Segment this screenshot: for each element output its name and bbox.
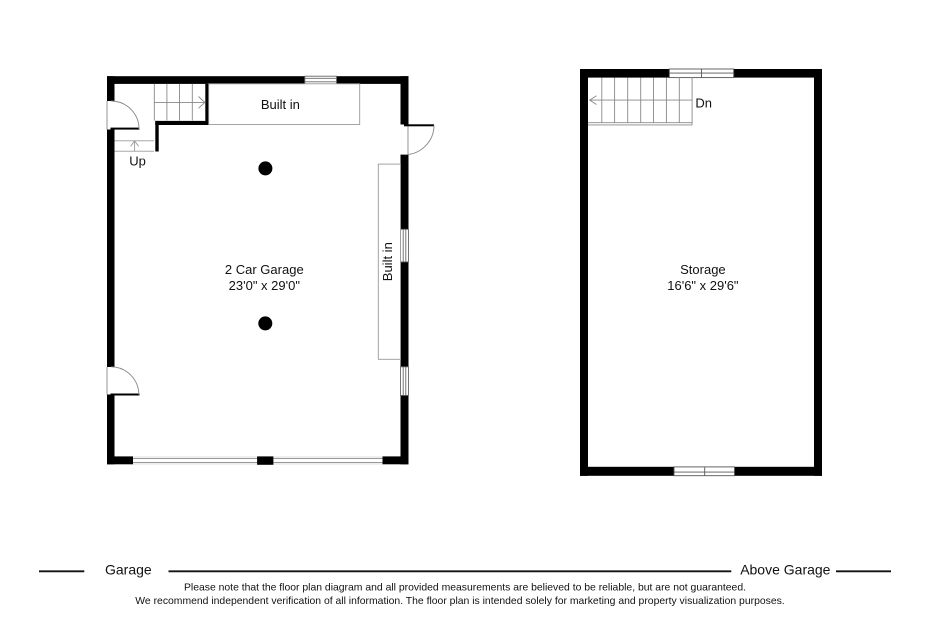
svg-text:Dn: Dn: [695, 95, 712, 110]
svg-text:2 Car Garage: 2 Car Garage: [225, 262, 304, 277]
svg-text:Built in: Built in: [261, 97, 300, 112]
svg-text:16'6" x 29'6": 16'6" x 29'6": [667, 278, 739, 293]
svg-text:Please note that the floor pla: Please note that the floor plan diagram …: [184, 582, 746, 593]
svg-text:23'0" x 29'0": 23'0" x 29'0": [229, 278, 301, 293]
svg-text:We recommend independent verif: We recommend independent verification of…: [135, 596, 784, 607]
svg-text:Up: Up: [129, 154, 146, 169]
svg-text:Storage: Storage: [680, 262, 726, 277]
svg-text:Garage: Garage: [105, 562, 152, 578]
svg-text:Above Garage: Above Garage: [740, 562, 830, 578]
svg-text:Built in: Built in: [380, 242, 395, 281]
